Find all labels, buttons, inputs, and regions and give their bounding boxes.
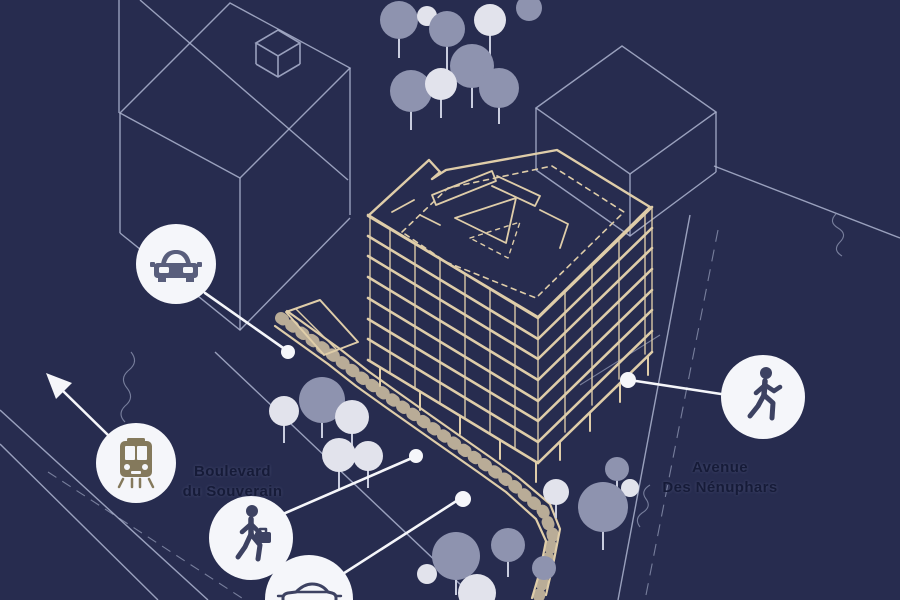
street-label-line: du Souverain bbox=[150, 482, 315, 502]
tree bbox=[479, 68, 519, 108]
tree bbox=[380, 1, 418, 39]
tree bbox=[390, 70, 432, 112]
leader-dot bbox=[281, 345, 295, 359]
tree bbox=[322, 438, 356, 472]
tree bbox=[474, 4, 506, 36]
tree bbox=[516, 0, 542, 21]
tree bbox=[532, 556, 556, 580]
tree bbox=[269, 396, 299, 426]
facade-right-slabs bbox=[538, 207, 652, 463]
terrain-squiggle bbox=[832, 214, 843, 256]
leader-dot bbox=[620, 372, 636, 388]
facade-left-slabs bbox=[368, 215, 538, 463]
direction-arrow-icon bbox=[46, 373, 109, 436]
street-label-line: Avenue bbox=[640, 458, 800, 478]
axonometric-diagram bbox=[0, 0, 900, 600]
tree bbox=[605, 457, 629, 481]
tree bbox=[429, 11, 465, 47]
street-label-boulevard: Boulevard du Souverain bbox=[150, 462, 315, 501]
tree bbox=[353, 441, 383, 471]
leader-dot bbox=[455, 491, 471, 507]
tree bbox=[335, 400, 369, 434]
tree bbox=[417, 564, 437, 584]
street-label-line: Des Nénuphars bbox=[640, 478, 800, 498]
right-building-block bbox=[536, 46, 716, 236]
street-label-avenue: Avenue Des Nénuphars bbox=[640, 458, 800, 497]
diagram-stage: Boulevard du Souverain Avenue Des Nénuph… bbox=[0, 0, 900, 600]
tree bbox=[425, 68, 457, 100]
tree bbox=[491, 528, 525, 562]
main-building bbox=[368, 150, 652, 482]
tree bbox=[543, 479, 569, 505]
street-label-line: Boulevard bbox=[150, 462, 315, 482]
callout-pedestrian bbox=[721, 355, 805, 439]
leader-dot bbox=[409, 449, 423, 463]
tree bbox=[578, 482, 628, 532]
tree-cluster-top bbox=[380, 0, 542, 130]
tree bbox=[432, 532, 480, 580]
terrain-squiggle bbox=[121, 352, 135, 422]
roof-walls bbox=[392, 171, 568, 248]
callout-car-access bbox=[136, 224, 216, 304]
